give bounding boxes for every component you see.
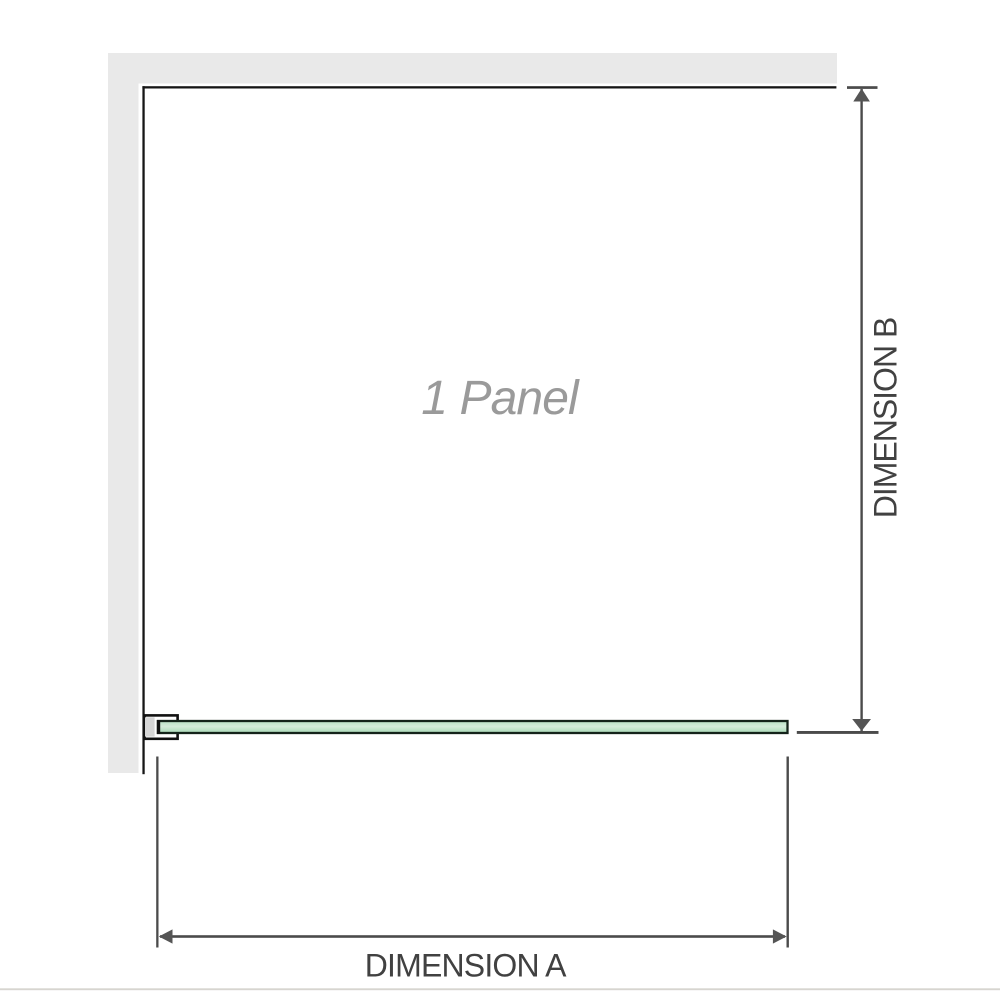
svg-text:DIMENSION A: DIMENSION A — [365, 948, 567, 984]
svg-text:DIMENSION B: DIMENSION B — [868, 318, 904, 519]
svg-text:1 Panel: 1 Panel — [421, 372, 580, 425]
